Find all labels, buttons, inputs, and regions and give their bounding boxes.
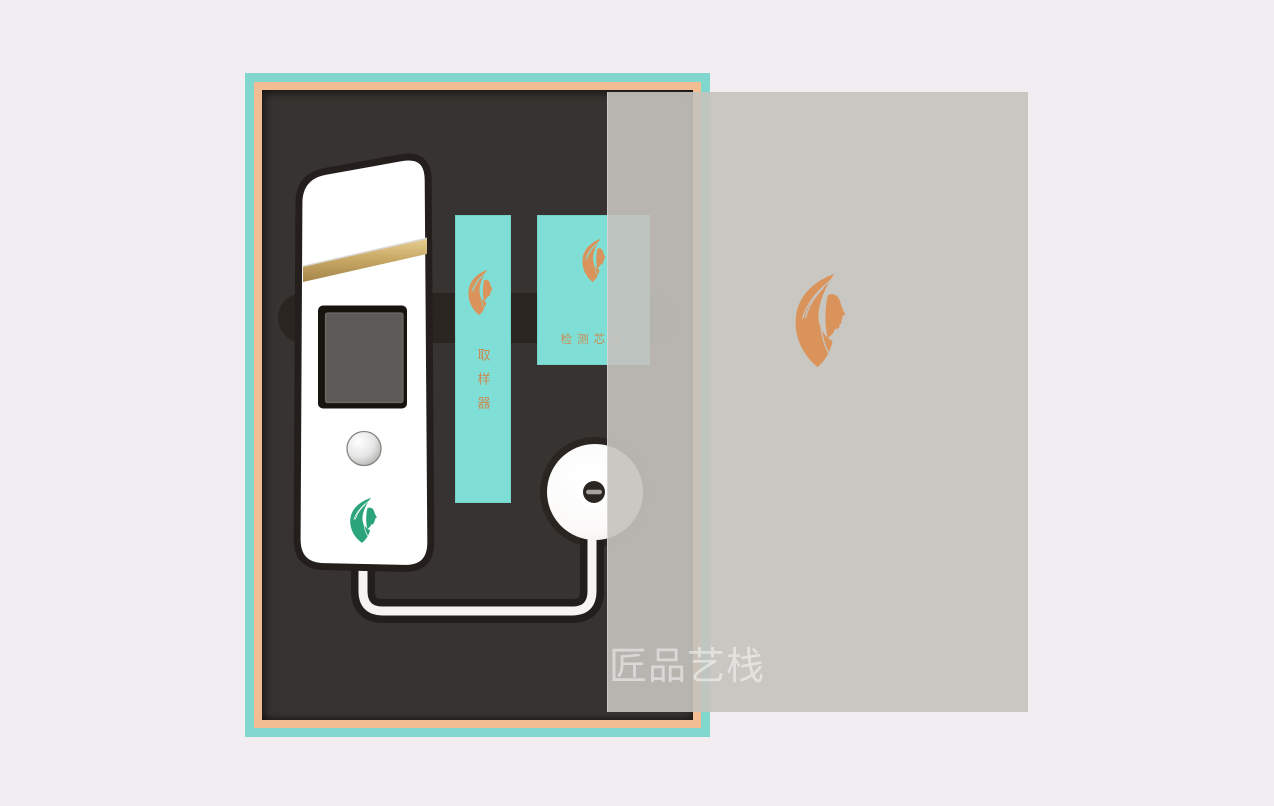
face-leaf-logo-icon [465,269,495,316]
face-leaf-logo-icon [579,238,608,283]
translucent-lid [607,92,1028,712]
packaging-scene: 取样器 检测芯片 匠品艺栈 [0,0,1274,806]
face-leaf-logo-icon [791,272,848,369]
watermark-text: 匠品艺栈 [609,643,765,692]
sampler-card: 取样器 [455,215,511,503]
sampler-card-label: 取样器 [474,348,493,420]
